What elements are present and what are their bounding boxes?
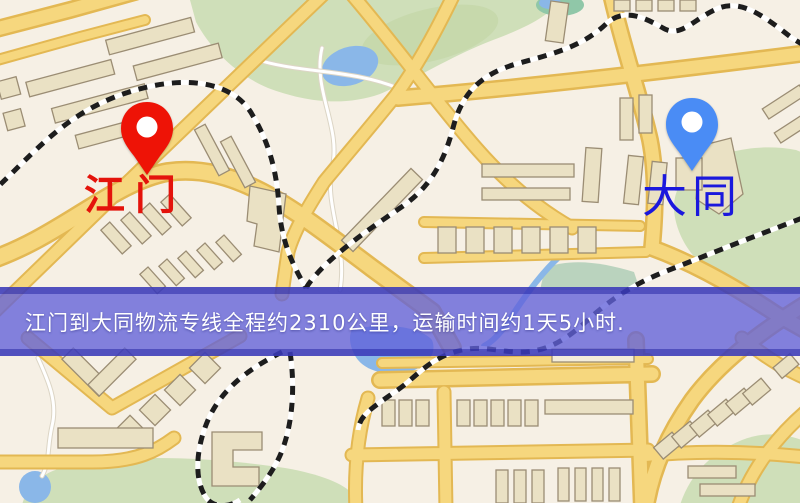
route-info-text: 江门到大同物流专线全程约2310公里，运输时间约1天5小时. [0, 307, 625, 337]
destination-pin[interactable] [664, 97, 720, 173]
destination-pin-shape [666, 98, 718, 171]
origin-city-label: 江门 [84, 175, 186, 216]
map-canvas[interactable] [0, 0, 800, 503]
map-pin-icon [119, 101, 175, 177]
origin-pin[interactable] [119, 101, 175, 177]
origin-pin-hole [137, 117, 158, 138]
logistics-route-map: 江门 大同 江门到大同物流专线全程约2310公里，运输时间约1天5小时. [0, 0, 800, 503]
destination-pin-hole [682, 112, 703, 133]
origin-pin-shape [121, 102, 173, 175]
route-info-banner: 江门到大同物流专线全程约2310公里，运输时间约1天5小时. [0, 287, 800, 356]
map-pin-icon [664, 97, 720, 173]
destination-city-label: 大同 [642, 174, 742, 219]
